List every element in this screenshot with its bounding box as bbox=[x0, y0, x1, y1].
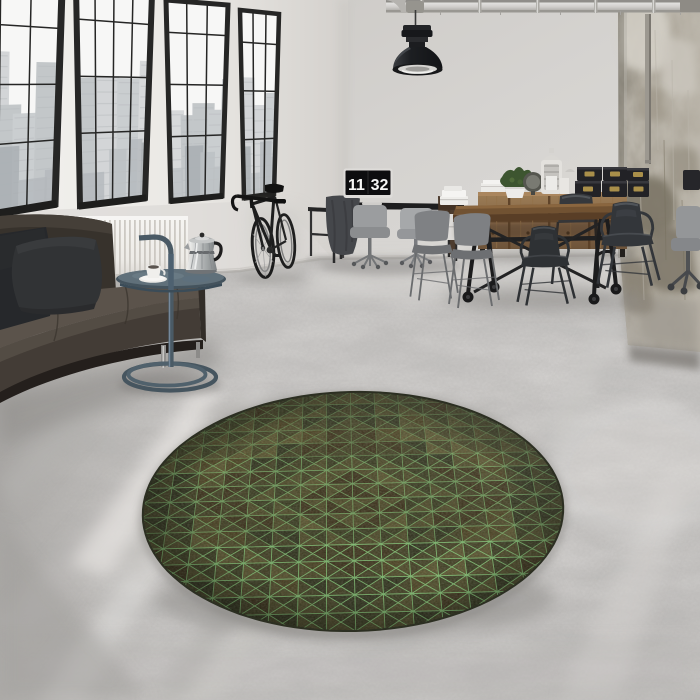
svg-text:32: 32 bbox=[371, 177, 389, 194]
svg-text:11: 11 bbox=[348, 177, 365, 194]
